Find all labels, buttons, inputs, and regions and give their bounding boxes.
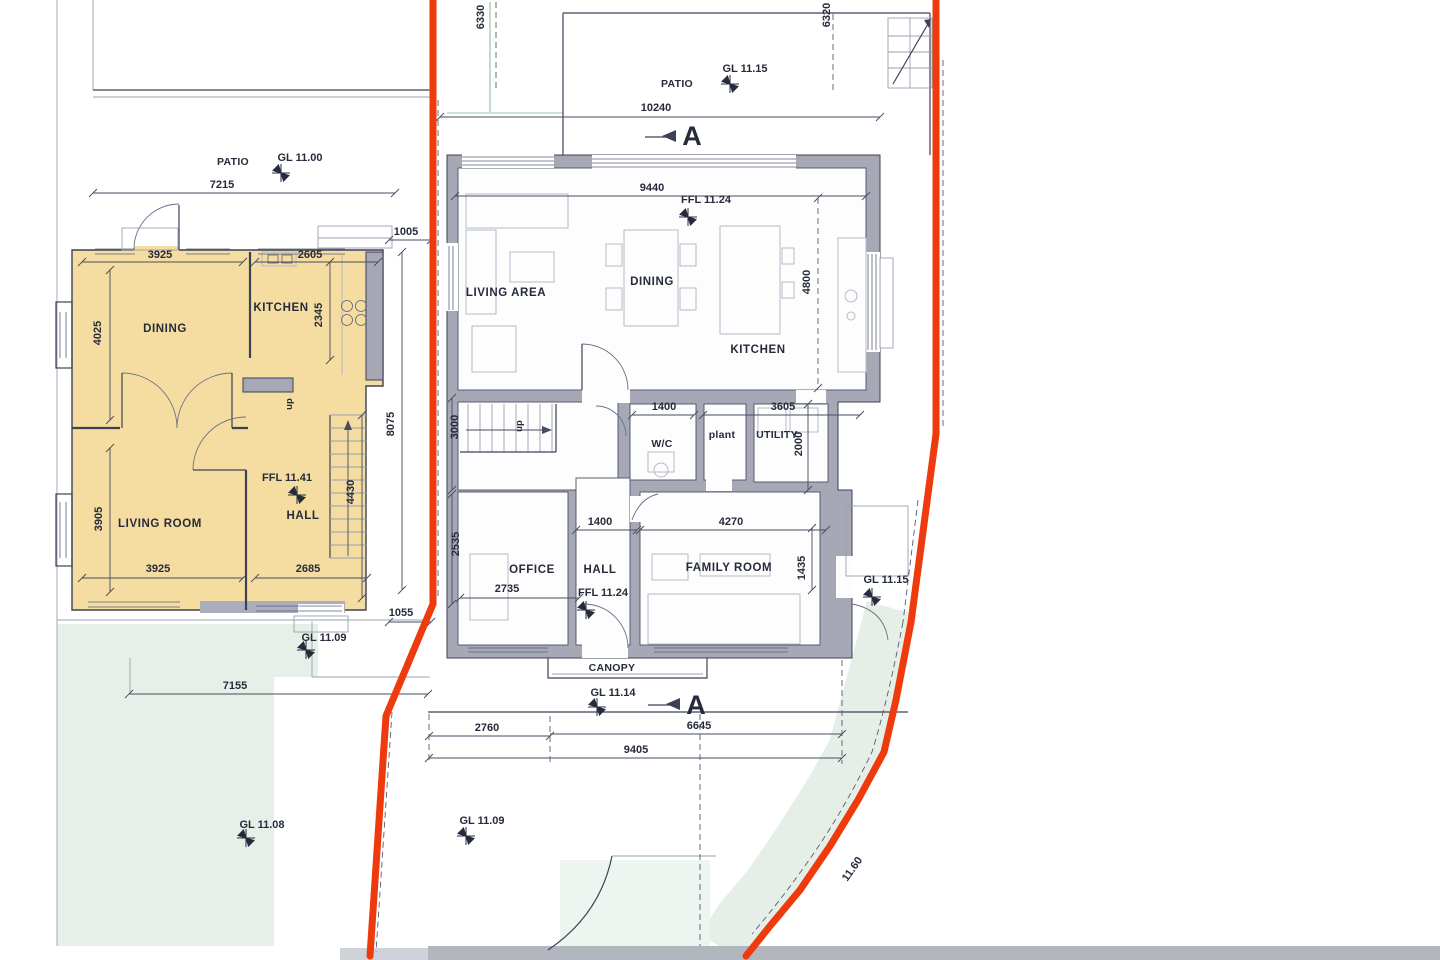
kitchen-bottom-wall [243, 378, 293, 392]
room-living-area: LIVING AREA [466, 287, 546, 299]
room-utility: UTILITY [756, 429, 798, 441]
room-dining-right: DINING [630, 276, 674, 288]
utility-room [754, 404, 828, 482]
dim-3000: 3000 [449, 415, 461, 439]
room-office: OFFICE [509, 564, 555, 576]
gl-1115-top-marker [721, 75, 739, 93]
living-bay-window [56, 494, 72, 566]
section-a-bottom-label: A [686, 690, 706, 720]
dim-1055: 1055 [389, 607, 413, 619]
dim-2345: 2345 [313, 303, 325, 327]
dim-3605: 3605 [771, 401, 795, 413]
room-hall-left: HALL [286, 510, 319, 522]
left-house [56, 204, 392, 632]
dining-bay-window [56, 302, 72, 368]
dim-4430: 4430 [345, 480, 357, 504]
site-plan-page: PATIO GL 11.00 7215 3925 2605 1005 DININ… [0, 0, 1440, 960]
kitchen-right-wall [366, 252, 383, 380]
section-marker-a-top [645, 130, 676, 142]
room-kitchen-left: KITCHEN [253, 302, 308, 314]
dim-3905: 3905 [93, 507, 105, 531]
section-marker-a-bottom [648, 698, 680, 710]
room-hall-right: HALL [583, 564, 616, 576]
right-patio-outline [563, 13, 932, 155]
room-living-left: LIVING ROOM [118, 518, 202, 530]
dim-2000: 2000 [793, 432, 805, 456]
section-a-top-label: A [682, 121, 702, 151]
dim-2685: 2685 [296, 563, 320, 575]
gl-1100-marker [272, 164, 290, 182]
garden-tints [57, 608, 892, 948]
stairs-up-right: up [514, 420, 525, 432]
front-door-opening [582, 643, 628, 658]
dim-1400-mid: 1400 [588, 516, 612, 528]
dim-6645: 6645 [687, 720, 711, 732]
gl-1115-right-label: GL 11.15 [863, 574, 908, 586]
stair-hall [458, 402, 618, 490]
gl-1109-garden-label: GL 11.09 [459, 815, 504, 827]
boundary-level-1160: 11.60 [840, 855, 865, 884]
dim-7215: 7215 [210, 179, 234, 191]
dim-3925-bottom: 3925 [146, 563, 170, 575]
gl-1108-label: GL 11.08 [239, 819, 284, 831]
ffl-1141-label: FFL 11.41 [262, 472, 312, 484]
gl-1109-label: GL 11.09 [301, 632, 346, 644]
gl-1115-top-label: GL 11.15 [722, 63, 767, 75]
gl-1100-label: GL 11.00 [277, 152, 322, 164]
dim-9405: 9405 [624, 744, 648, 756]
red-boundary-left [370, 0, 433, 956]
dim-1005: 1005 [394, 226, 418, 238]
right-house [445, 153, 908, 678]
road-edge [340, 946, 1440, 960]
dim-4800: 4800 [801, 270, 813, 294]
dim-1400-top: 1400 [652, 401, 676, 413]
room-plant: plant [709, 429, 736, 441]
dim-2760: 2760 [475, 722, 499, 734]
terrace-door-opening [836, 556, 853, 598]
hall-opening [582, 388, 630, 403]
dim-9440: 9440 [640, 182, 664, 194]
back-door-swing [134, 204, 179, 249]
dim-3925-top: 3925 [148, 249, 172, 261]
site-plan-drawing: PATIO GL 11.00 7215 3925 2605 1005 DININ… [0, 0, 1440, 960]
ffl-1124-top-label: FFL 11.24 [681, 194, 732, 206]
stairs-up-left: up [284, 398, 295, 410]
room-wc: W/C [651, 438, 672, 450]
plant-door-opening [706, 478, 732, 491]
dim-6330: 6330 [475, 5, 487, 29]
terrace [846, 506, 908, 576]
room-dining-left: DINING [143, 323, 187, 335]
side-step [318, 226, 392, 248]
gl-1114-label: GL 11.14 [590, 687, 636, 699]
gl-1115-right-marker [863, 588, 881, 606]
dim-1435: 1435 [796, 556, 808, 580]
dim-6320: 6320 [821, 3, 833, 27]
site-labels: GL 11.08 GL 11.09 [239, 815, 504, 831]
hall-room [576, 478, 630, 645]
hall-door-opening [298, 604, 344, 614]
room-family: FAMILY ROOM [686, 562, 772, 574]
patio-label-left: PATIO [217, 156, 249, 168]
gl-1109-garden-marker [457, 827, 475, 845]
room-kitchen-right: KITCHEN [730, 344, 785, 356]
dim-10240: 10240 [641, 102, 672, 114]
dim-7155: 7155 [223, 680, 247, 692]
gl-1114-marker [588, 698, 606, 716]
dim-2535: 2535 [450, 532, 462, 556]
dim-2735: 2735 [495, 583, 519, 595]
ffl-1124-bottom-label: FFL 11.24 [578, 587, 629, 599]
dim-4025: 4025 [92, 321, 104, 345]
family-door-opening [630, 496, 641, 522]
patio-label-right: PATIO [661, 78, 693, 90]
dim-4270: 4270 [719, 516, 743, 528]
dim-2605: 2605 [298, 249, 322, 261]
dim-8075: 8075 [385, 412, 397, 436]
canopy-label: CANOPY [589, 662, 636, 674]
stair-arrow-line [893, 24, 928, 84]
